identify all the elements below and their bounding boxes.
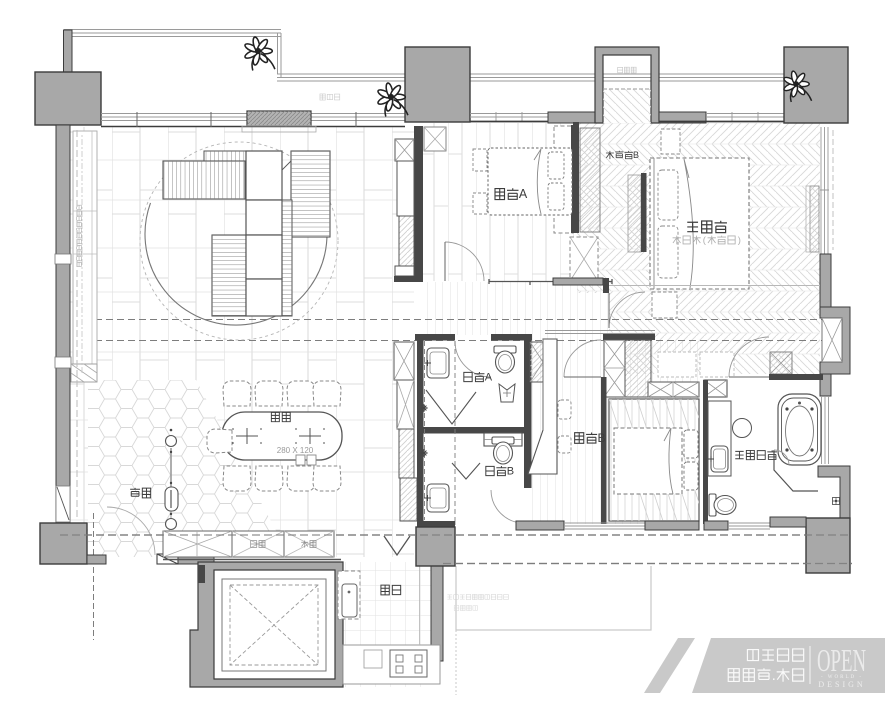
svg-text:A: A [485, 372, 493, 384]
svg-text:): ) [738, 235, 741, 246]
svg-text:280 X 120: 280 X 120 [277, 446, 314, 455]
svg-text:B: B [507, 466, 514, 478]
svg-text:.: . [772, 668, 776, 684]
svg-text:DESIGN: DESIGN [818, 680, 865, 689]
svg-text:B: B [633, 150, 639, 160]
svg-text:OPEN: OPEN [817, 642, 866, 678]
svg-text:A: A [519, 187, 528, 201]
svg-text:B: B [597, 431, 605, 445]
